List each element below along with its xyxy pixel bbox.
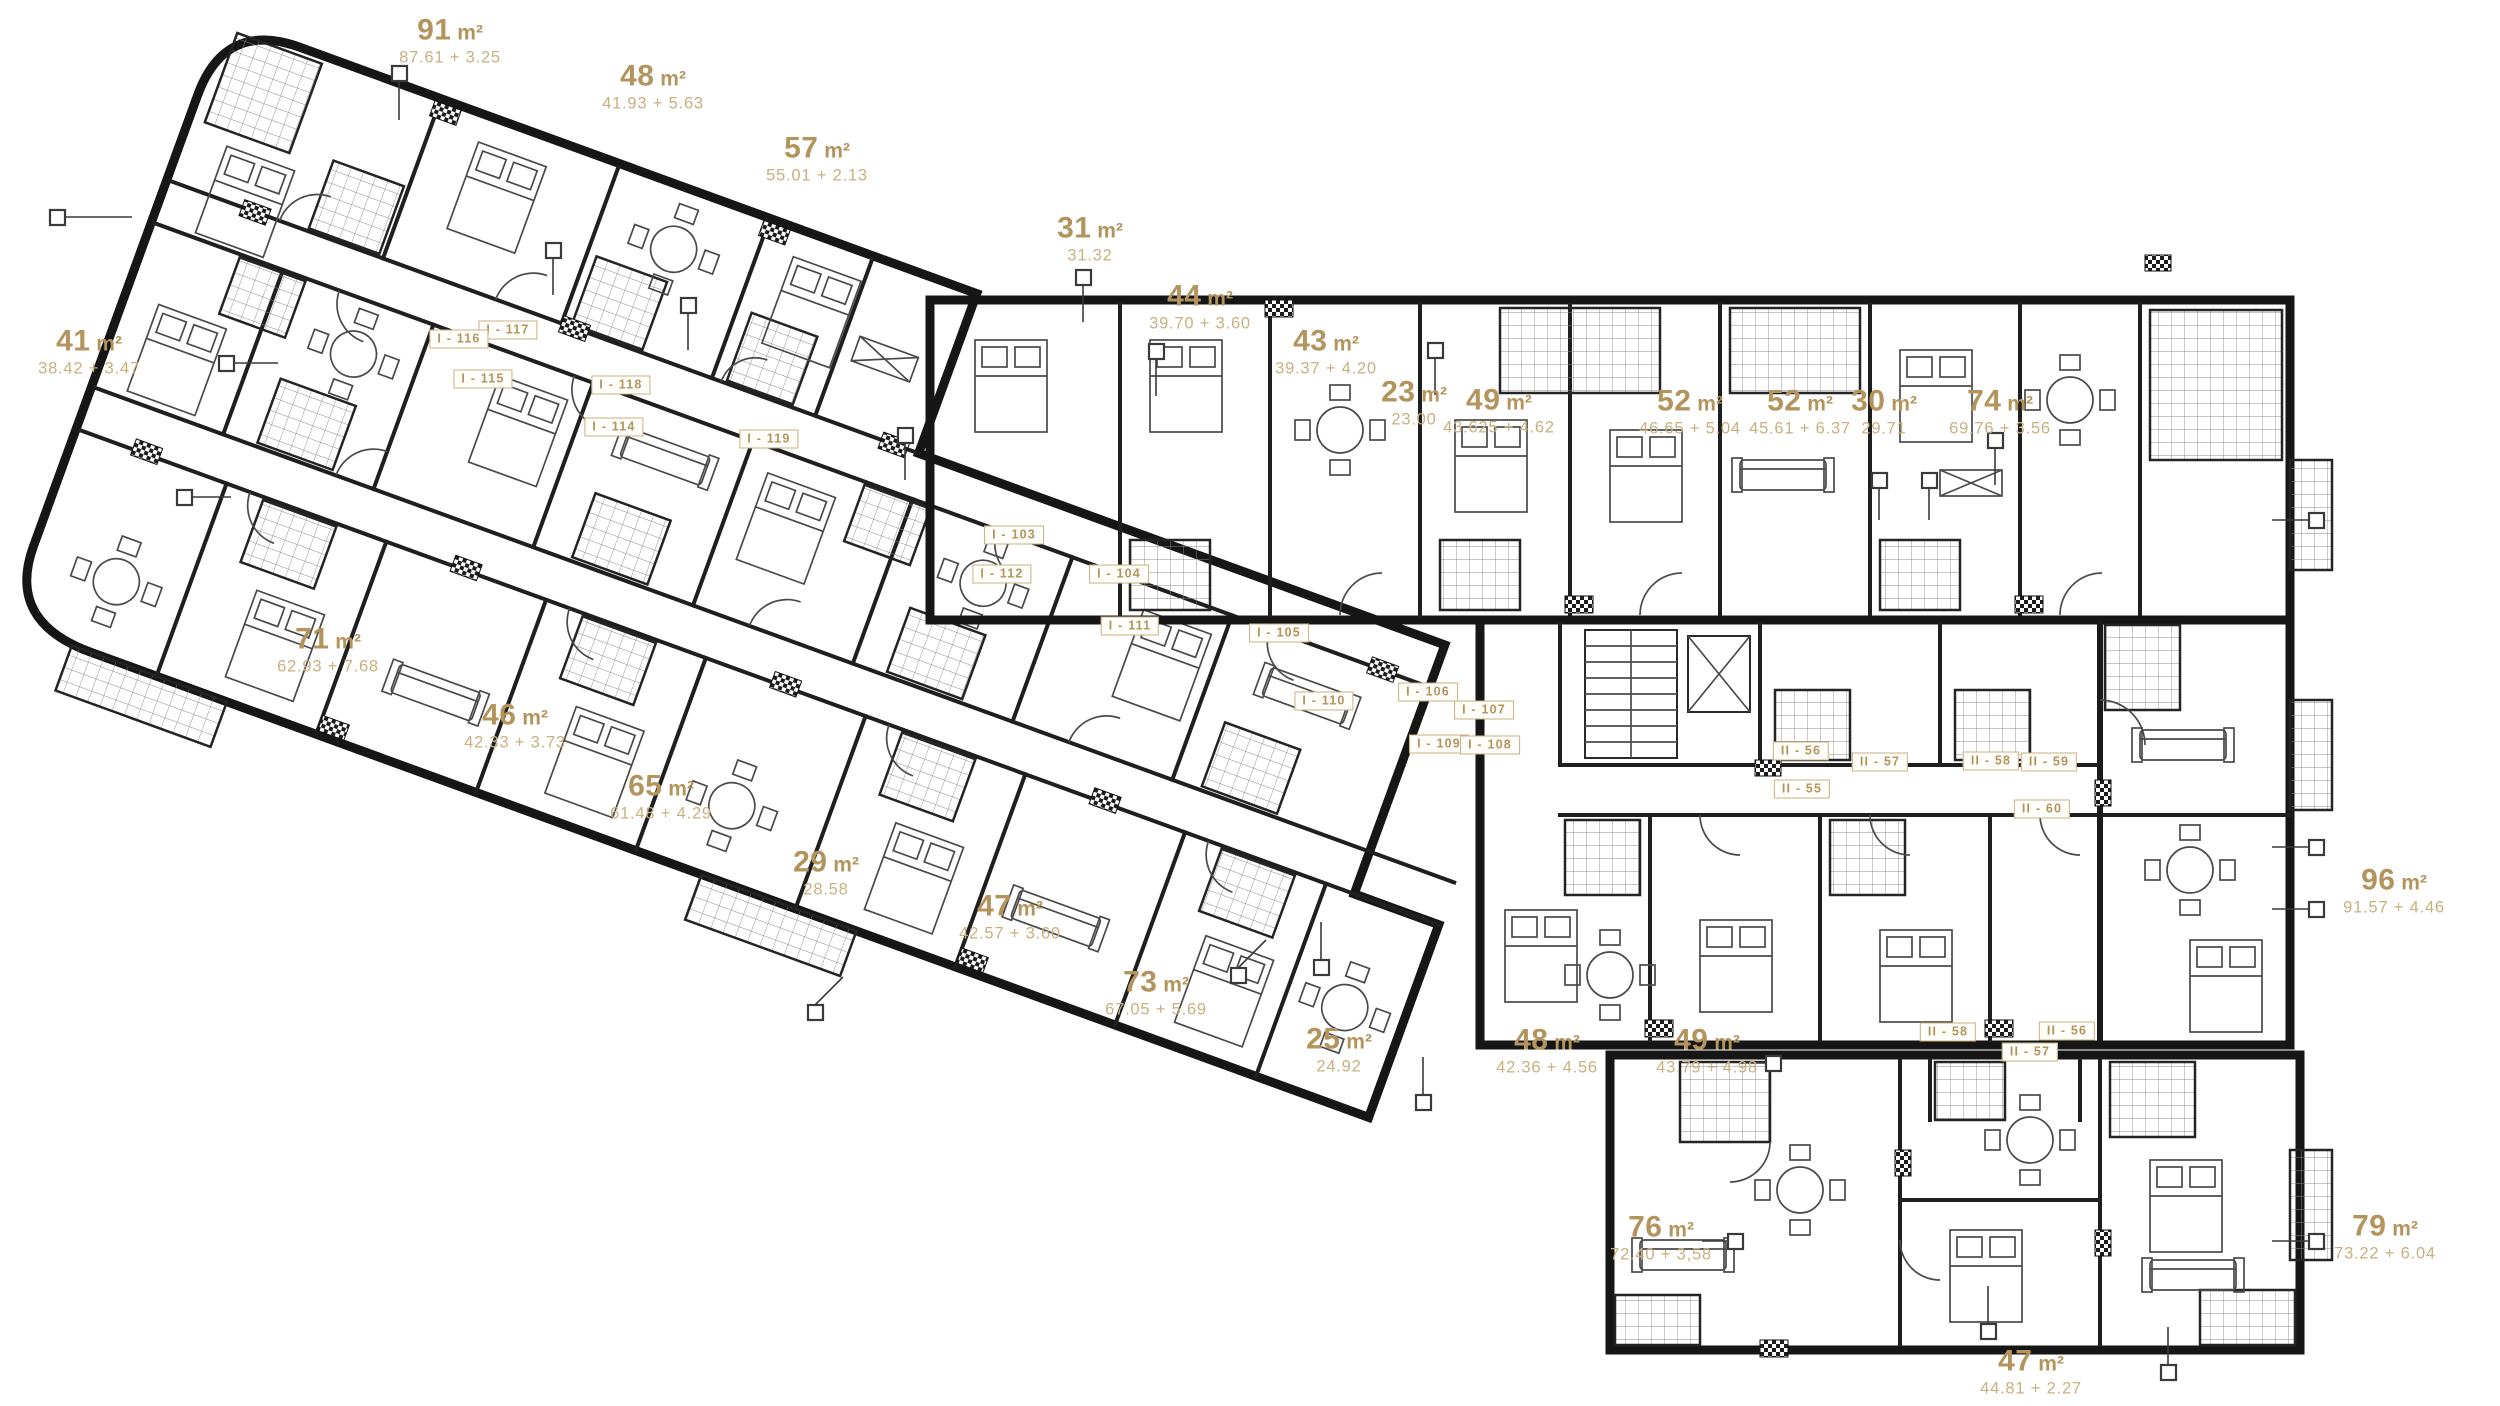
wing-diagonal	[0, 20, 1588, 1162]
floor-plan-drawing	[0, 0, 2500, 1406]
block-lower	[1610, 1055, 2300, 1357]
block-upper-right	[930, 255, 2290, 620]
block-middle-right	[1480, 620, 2290, 1045]
floor-plan-page: 91 m²87.61 + 3.2548 m²41.93 + 5.6357 m²5…	[0, 0, 2500, 1406]
